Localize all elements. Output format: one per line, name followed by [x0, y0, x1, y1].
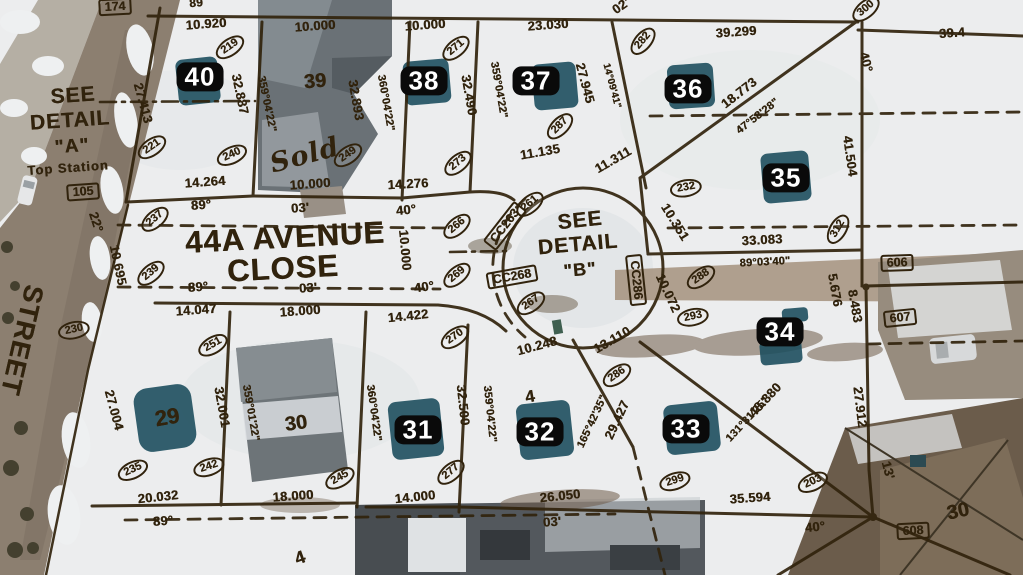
lot-number-badge: 31 — [395, 415, 442, 444]
measurement-label: 10.920 — [185, 16, 227, 32]
measurement-label: 40° — [413, 279, 435, 295]
measurement-label: 131°31'25" — [724, 395, 771, 445]
detail-a-line1: SEE — [50, 83, 96, 108]
street-name-line2: CLOSE — [226, 250, 339, 288]
reference-box-label: 608 — [896, 522, 930, 541]
measurement-label: 14.047 — [175, 302, 217, 318]
measurement-label: 35.594 — [729, 490, 771, 506]
reference-box-label: CC286 — [625, 254, 647, 306]
measurement-label: 03' — [290, 201, 309, 216]
lot-number-badge: 36 — [665, 74, 712, 103]
survey-point-label: 251 — [195, 329, 232, 360]
lot-number-badge: 32 — [517, 417, 564, 446]
survey-point-label: 219 — [212, 31, 249, 64]
lot-number-label: 29 — [153, 404, 181, 431]
survey-point-label: 288 — [683, 261, 720, 294]
survey-point-label: 232 — [669, 177, 704, 200]
lot-number-badge: 38 — [401, 66, 448, 95]
measurement-label: 32.887 — [229, 73, 251, 116]
measurement-label: 13' — [879, 459, 897, 480]
measurement-label: 10.000 — [396, 229, 413, 271]
measurement-label: 8.483 — [845, 288, 864, 323]
measurement-label: 4 — [292, 547, 308, 568]
survey-point-label: 221 — [134, 131, 171, 164]
detail-b-line3: "B" — [563, 259, 598, 281]
measurement-label: 4 — [524, 387, 537, 406]
measurement-label: 03' — [298, 281, 317, 296]
survey-point-label: 300 — [848, 0, 884, 26]
measurement-label: 10.000 — [289, 176, 331, 192]
survey-point-label: 230 — [56, 318, 91, 342]
survey-point-label: 282 — [626, 23, 660, 59]
measurement-label: 89°03'40" — [739, 256, 790, 270]
measurement-label: 359°04'22" — [254, 75, 277, 133]
reference-box-label: CC268 — [485, 264, 538, 290]
survey-point-label: 245 — [322, 462, 359, 493]
measurement-label: 359°04'22" — [480, 385, 497, 443]
measurement-label: 39.4 — [939, 25, 966, 40]
lot-number-label: 30 — [945, 499, 971, 524]
measurement-label: 14°09'41" — [600, 62, 622, 109]
measurement-label: 5.676 — [825, 272, 844, 307]
handwritten-sold: Sold — [267, 133, 343, 179]
measurement-label: 18.773 — [719, 75, 760, 111]
measurement-label: 32.893 — [346, 79, 367, 122]
survey-point-label: 237 — [137, 202, 173, 236]
measurement-label: 14.276 — [387, 176, 429, 192]
measurement-label: 359°01'22" — [239, 384, 260, 442]
measurement-label: 02' — [610, 0, 633, 17]
lot-number-badge: 35 — [763, 163, 810, 192]
measurement-label: 359°04'22" — [487, 61, 508, 119]
survey-point-label: 273 — [440, 146, 476, 180]
detail-a-line2: DETAIL — [29, 107, 111, 135]
measurement-label: 27.413 — [131, 81, 155, 124]
measurement-label: 22° — [86, 210, 105, 233]
measurement-label: 10.000 — [404, 17, 446, 33]
plat-map-screenshot: SEEDETAIL"A"Top Station44A AVENUECLOSEST… — [0, 0, 1023, 575]
lot-number-badge: 37 — [513, 66, 560, 95]
measurement-label: 10.695 — [107, 244, 129, 287]
measurement-label: 18.000 — [279, 303, 321, 319]
survey-point-label: 203 — [795, 467, 832, 497]
measurement-label: 14.422 — [387, 307, 429, 325]
measurement-label: 10.351 — [658, 201, 691, 243]
measurement-label: 40° — [804, 519, 826, 535]
measurement-label: 27.004 — [102, 388, 126, 431]
survey-point-label: 267 — [513, 287, 550, 320]
measurement-label: 14.264 — [184, 174, 226, 190]
measurement-label: 03' — [542, 515, 561, 530]
map-labels-layer: SEEDETAIL"A"Top Station44A AVENUECLOSEST… — [0, 0, 1023, 575]
measurement-label: 10.072 — [653, 272, 683, 315]
measurement-label: 10.000 — [294, 18, 336, 34]
survey-point-label: 235 — [115, 455, 152, 485]
detail-a-line3: "A" — [54, 136, 90, 158]
measurement-label: 11.135 — [519, 142, 561, 162]
measurement-label: 27.945 — [573, 61, 597, 104]
measurement-label: 23.030 — [527, 17, 569, 33]
measurement-label: 32.001 — [212, 386, 233, 429]
measurement-label: 89° — [152, 513, 173, 528]
measurement-label: 89 — [189, 0, 204, 10]
measurement-label: 10.248 — [515, 334, 558, 358]
reference-box-label: 174 — [98, 0, 132, 16]
measurement-label: 14.000 — [394, 488, 436, 506]
measurement-label: 39.299 — [715, 24, 757, 40]
measurement-label: 47°58'28" — [734, 97, 781, 137]
survey-point-label: 312 — [822, 211, 853, 248]
measurement-label: 89° — [190, 197, 211, 212]
measurement-label: 26.050 — [539, 487, 581, 505]
reference-box-label: 105 — [66, 182, 100, 201]
lot-number-badge: 34 — [757, 317, 804, 346]
survey-point-label: 299 — [657, 468, 693, 495]
reference-box-label: CC263 — [483, 201, 528, 252]
detail-a-note: Top Station — [27, 158, 109, 177]
lot-number-label: 39 — [303, 71, 327, 94]
lot-number-badge: 40 — [177, 62, 224, 91]
measurement-label: 360°04'22" — [363, 384, 382, 442]
measurement-label: 165°42'35" — [576, 394, 611, 451]
detail-b-line2: DETAIL — [537, 231, 619, 260]
cross-street-name: STREET — [0, 282, 48, 398]
measurement-label: 89° — [187, 279, 208, 294]
survey-point-label: 286 — [599, 359, 636, 392]
survey-point-label: 269 — [439, 258, 475, 292]
measurement-label: 40° — [857, 50, 875, 73]
survey-point-label: 239 — [133, 256, 169, 290]
measurement-label: 41.504 — [840, 135, 859, 177]
measurement-label: 18.000 — [272, 488, 314, 504]
measurement-label: 32.500 — [454, 384, 472, 426]
reference-box-label: 606 — [880, 254, 913, 272]
measurement-label: 11.311 — [592, 144, 633, 176]
measurement-label: 32.490 — [459, 74, 480, 117]
measurement-label: 27.912 — [851, 386, 870, 428]
survey-point-label: 287 — [542, 108, 577, 143]
measurement-label: 13.110 — [591, 324, 633, 356]
survey-point-label: 242 — [191, 454, 227, 481]
survey-point-label: 277 — [433, 455, 469, 489]
lot-number-badge: 33 — [663, 414, 710, 443]
reference-box-label: 607 — [883, 308, 917, 328]
measurement-label: 20.032 — [137, 488, 179, 506]
survey-point-label: 240 — [214, 140, 251, 170]
measurement-label: 360°04'22" — [374, 74, 395, 132]
measurement-label: 33.083 — [741, 232, 783, 248]
survey-point-label: 271 — [438, 31, 474, 65]
lot-number-label: 30 — [284, 412, 309, 436]
survey-point-label: 270 — [437, 321, 474, 354]
survey-point-label: 266 — [439, 209, 475, 243]
measurement-label: 40° — [395, 202, 417, 218]
